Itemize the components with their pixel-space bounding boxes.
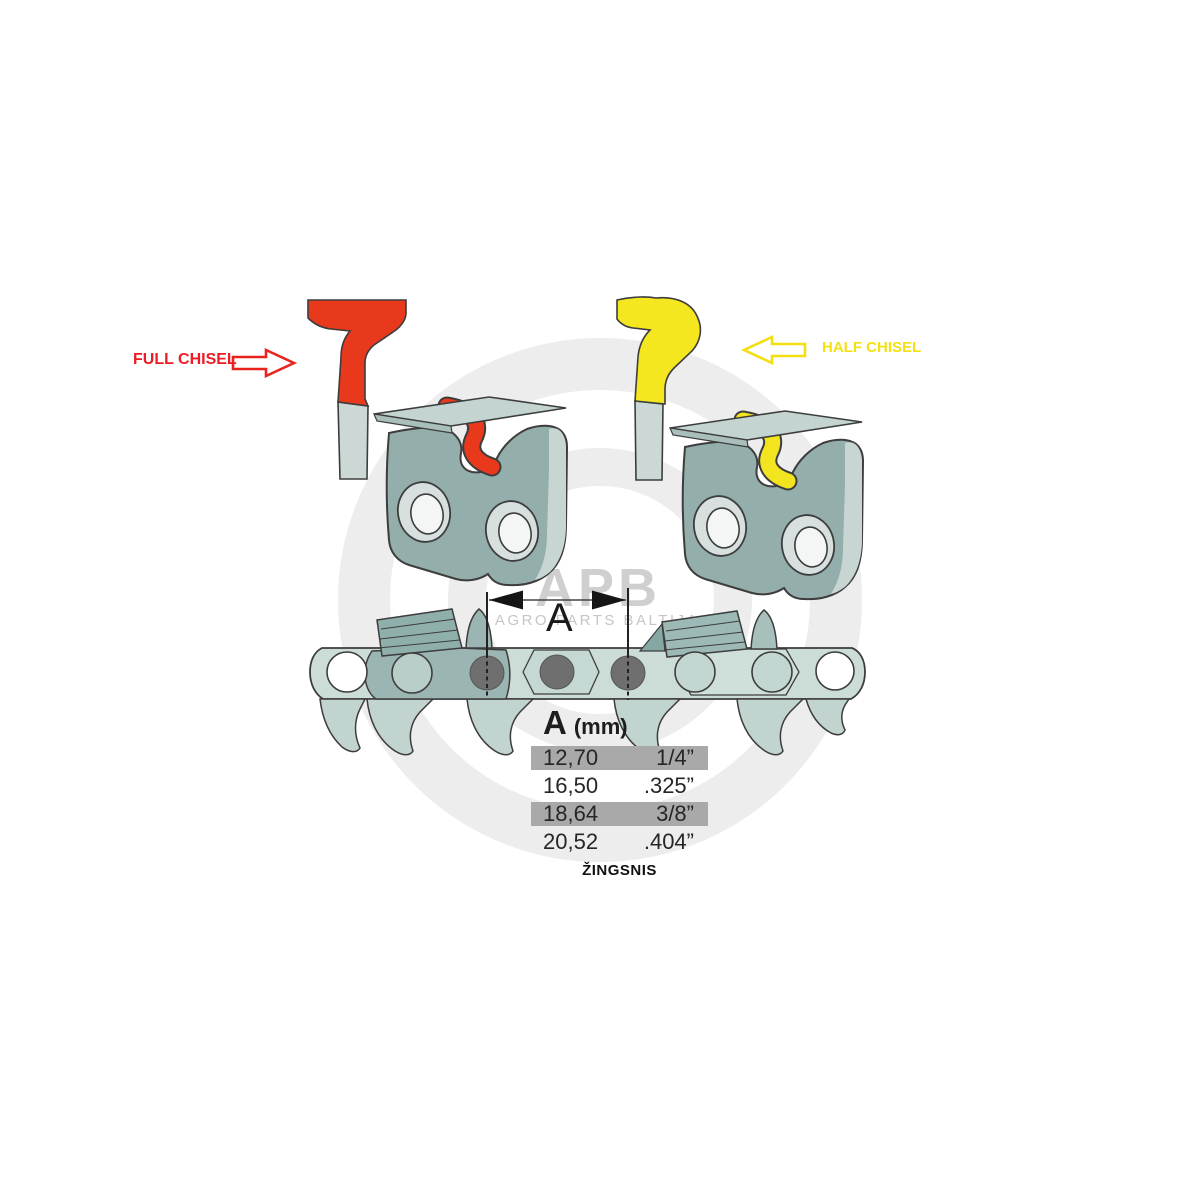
pitch-mm-value: 12,70	[543, 745, 598, 771]
table-row: 12,70 1/4”	[531, 746, 708, 770]
pitch-table-header-unit: (mm)	[574, 714, 628, 740]
pitch-table-header-letter: A	[543, 704, 567, 742]
profile-shank	[338, 402, 368, 479]
table-row: 16,50 .325”	[531, 774, 708, 798]
table-row: 20,52 .404”	[531, 830, 708, 854]
chain-hole	[327, 652, 367, 692]
pitch-inch-value: 3/8”	[656, 801, 694, 827]
pitch-mm-value: 18,64	[543, 801, 598, 827]
chain-hole	[392, 653, 432, 693]
pitch-table: A (mm) 12,70 1/4” 16,50 .325” 18,64 3/8”…	[531, 704, 708, 879]
pitch-table-header: A (mm)	[543, 704, 708, 746]
pitch-mm-value: 20,52	[543, 829, 598, 855]
product-diagram-canvas: APB AGRO PARTS BALTIJA	[0, 0, 1188, 1188]
chain-hole	[675, 652, 715, 692]
right-depth-gauge	[751, 610, 777, 649]
dimension-arrowhead-left	[489, 591, 523, 610]
dimension-label: A	[546, 596, 573, 641]
chainsaw-chain-illustration: APB AGRO PARTS BALTIJA	[0, 0, 1188, 1188]
full-chisel-edge-shape	[308, 300, 406, 406]
profile-shank	[635, 401, 663, 480]
pitch-inch-value: .404”	[644, 829, 694, 855]
chain-hole	[816, 652, 854, 690]
full-chisel-arrow-icon	[233, 350, 294, 376]
rivet	[540, 655, 574, 689]
pitch-table-rows: 12,70 1/4” 16,50 .325” 18,64 3/8” 20,52 …	[531, 746, 708, 854]
pitch-caption: ŽINGSNIS	[531, 862, 708, 879]
half-chisel-arrow-icon	[744, 337, 805, 363]
pitch-inch-value: .325”	[644, 773, 694, 799]
full-chisel-cutter-link	[374, 397, 567, 585]
half-chisel-label: HALF CHISEL	[822, 339, 921, 356]
chain-hole	[752, 652, 792, 692]
pitch-inch-value: 1/4”	[656, 745, 694, 771]
drive-link-tooth	[320, 699, 365, 752]
full-chisel-label: FULL CHISEL	[133, 351, 237, 369]
pitch-mm-value: 16,50	[543, 773, 598, 799]
table-row: 18,64 3/8”	[531, 802, 708, 826]
half-chisel-cutter-link	[670, 411, 863, 599]
